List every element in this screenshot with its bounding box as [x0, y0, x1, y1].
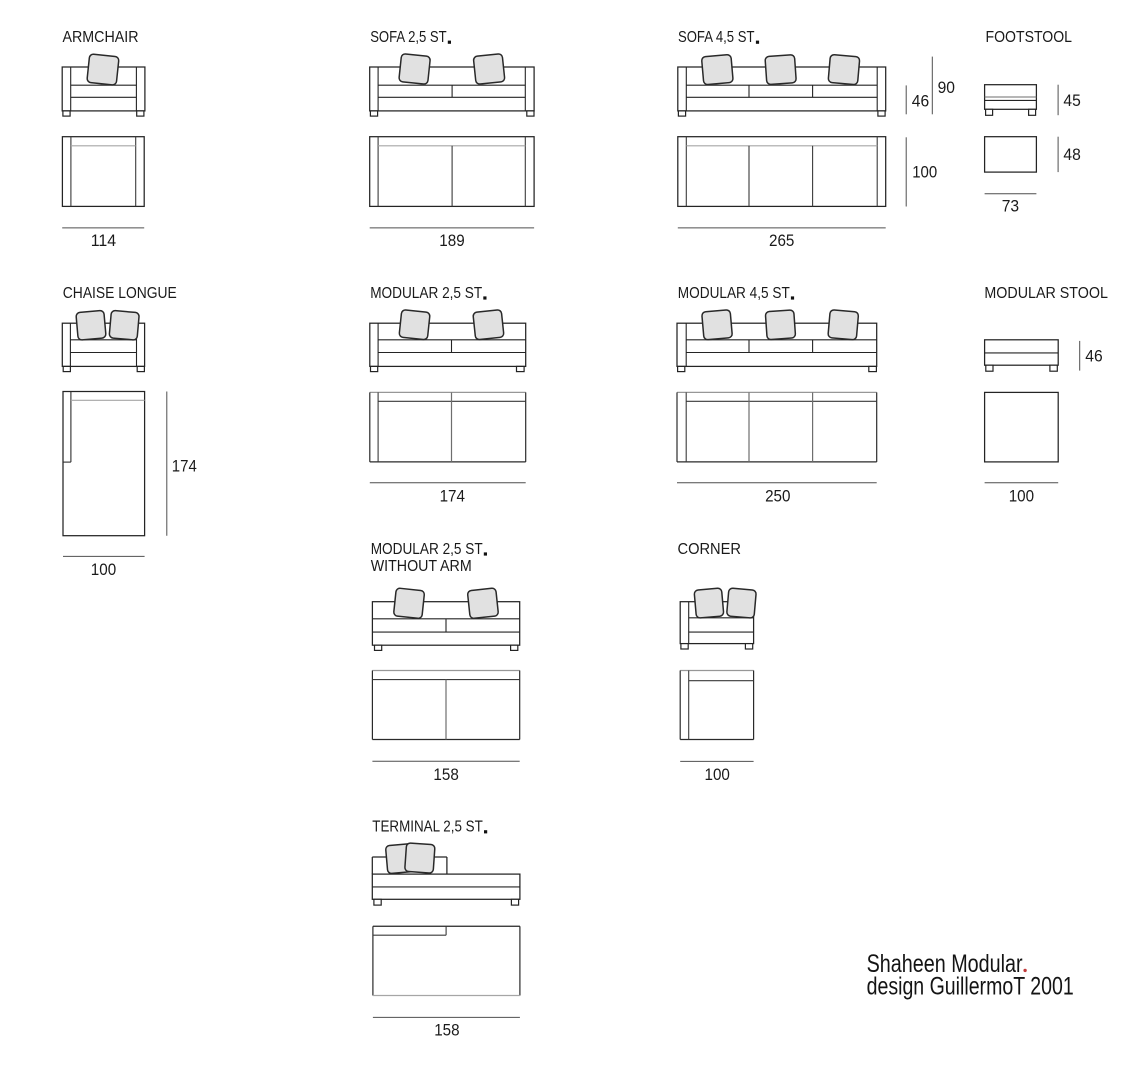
svg-text:SOFA 4,5 ST: SOFA 4,5 ST [678, 29, 755, 46]
svg-text:250: 250 [765, 486, 790, 505]
svg-text:MODULAR 4,5 ST: MODULAR 4,5 ST [678, 285, 790, 302]
svg-text:46: 46 [912, 91, 929, 110]
svg-text:100: 100 [1009, 486, 1034, 505]
svg-text:45: 45 [1063, 91, 1080, 110]
svg-text:48: 48 [1063, 145, 1080, 164]
svg-text:TERMINAL 2,5 ST: TERMINAL 2,5 ST [372, 819, 483, 836]
svg-text:CORNER: CORNER [678, 541, 742, 558]
svg-text:174: 174 [172, 457, 197, 476]
svg-text:FOOTSTOOL: FOOTSTOOL [986, 29, 1073, 46]
svg-text:MODULAR 2,5 ST: MODULAR 2,5 ST [370, 285, 482, 302]
svg-text:174: 174 [440, 486, 465, 505]
svg-text:SOFA 2,5 ST: SOFA 2,5 ST [370, 29, 447, 46]
svg-text:158: 158 [434, 1020, 459, 1039]
svg-text:MODULAR STOOL: MODULAR STOOL [984, 285, 1108, 302]
svg-text:100: 100 [91, 560, 116, 579]
svg-text:MODULAR 2,5 ST: MODULAR 2,5 ST [371, 541, 483, 558]
svg-text:100: 100 [912, 163, 937, 182]
svg-text:90: 90 [938, 78, 955, 97]
svg-text:ARMCHAIR: ARMCHAIR [63, 29, 139, 46]
svg-text:114: 114 [91, 231, 116, 250]
svg-text:158: 158 [433, 765, 458, 784]
svg-text:46: 46 [1085, 346, 1102, 365]
svg-text:73: 73 [1002, 196, 1019, 215]
svg-text:CHAISE LONGUE: CHAISE LONGUE [63, 285, 177, 302]
svg-text:WITHOUT ARM: WITHOUT ARM [371, 558, 472, 575]
svg-text:design GuillermoT 2001: design GuillermoT 2001 [867, 972, 1074, 1000]
svg-text:265: 265 [769, 231, 794, 250]
svg-text:100: 100 [705, 765, 730, 784]
svg-text:189: 189 [439, 231, 464, 250]
